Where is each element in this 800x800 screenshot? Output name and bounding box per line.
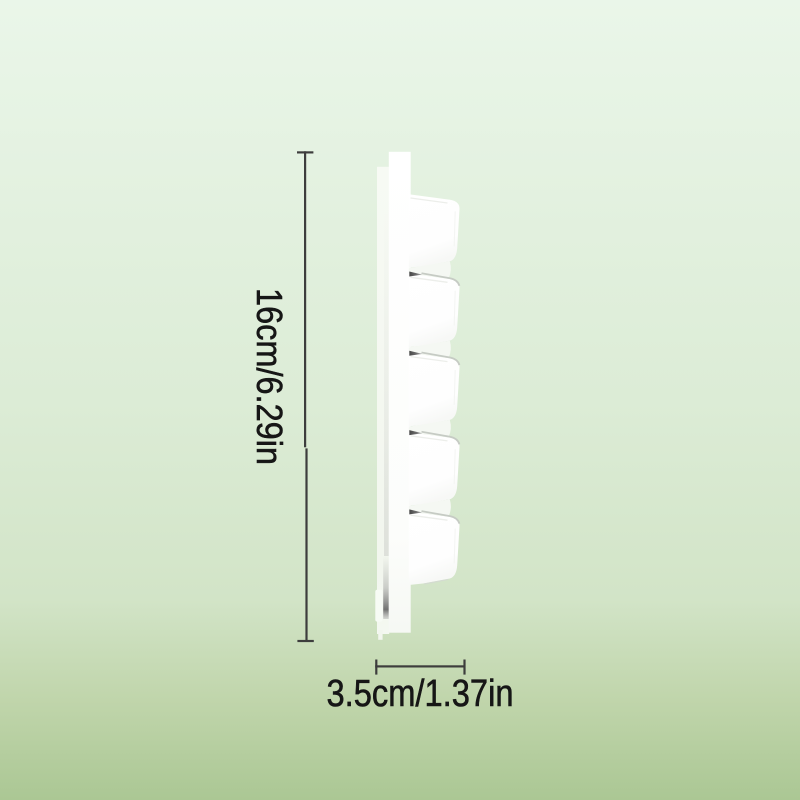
svg-text:3.5cm/1.37in: 3.5cm/1.37in [327, 673, 514, 715]
svg-text:16cm/6.29in: 16cm/6.29in [249, 288, 290, 465]
